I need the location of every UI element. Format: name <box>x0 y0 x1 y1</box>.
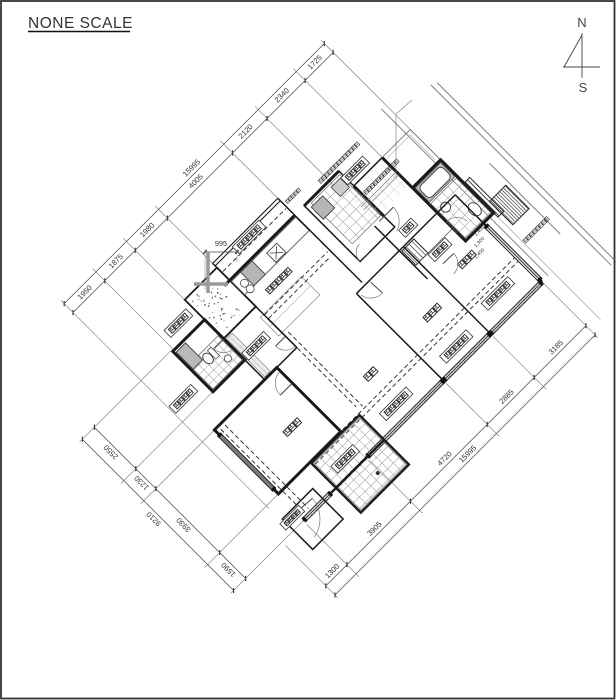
svg-text:1590: 1590 <box>219 561 237 579</box>
svg-text:4720: 4720 <box>435 449 453 467</box>
svg-text:1725: 1725 <box>306 53 324 71</box>
svg-text:3905: 3905 <box>365 520 383 538</box>
svg-text:NONE SCALE: NONE SCALE <box>28 15 133 32</box>
svg-text:S: S <box>579 80 588 95</box>
svg-text:2120: 2120 <box>236 122 254 140</box>
svg-text:1980: 1980 <box>138 221 156 239</box>
svg-text:1230: 1230 <box>132 474 150 492</box>
svg-text:9210: 9210 <box>144 510 162 528</box>
svg-text:2550: 2550 <box>102 443 120 461</box>
svg-text:1950: 1950 <box>76 283 94 301</box>
svg-text:N: N <box>577 15 586 30</box>
svg-text:1,300: 1,300 <box>473 236 486 249</box>
svg-text:1,400: 1,400 <box>473 247 486 260</box>
svg-text:1875: 1875 <box>107 252 125 270</box>
svg-text:2885: 2885 <box>497 388 515 406</box>
svg-text:1300: 1300 <box>323 562 341 580</box>
svg-text:15995: 15995 <box>457 443 478 464</box>
svg-text:2340: 2340 <box>273 86 291 104</box>
svg-text:995: 995 <box>215 239 227 248</box>
svg-text:3930: 3930 <box>174 516 192 534</box>
svg-text:3185: 3185 <box>547 338 565 356</box>
